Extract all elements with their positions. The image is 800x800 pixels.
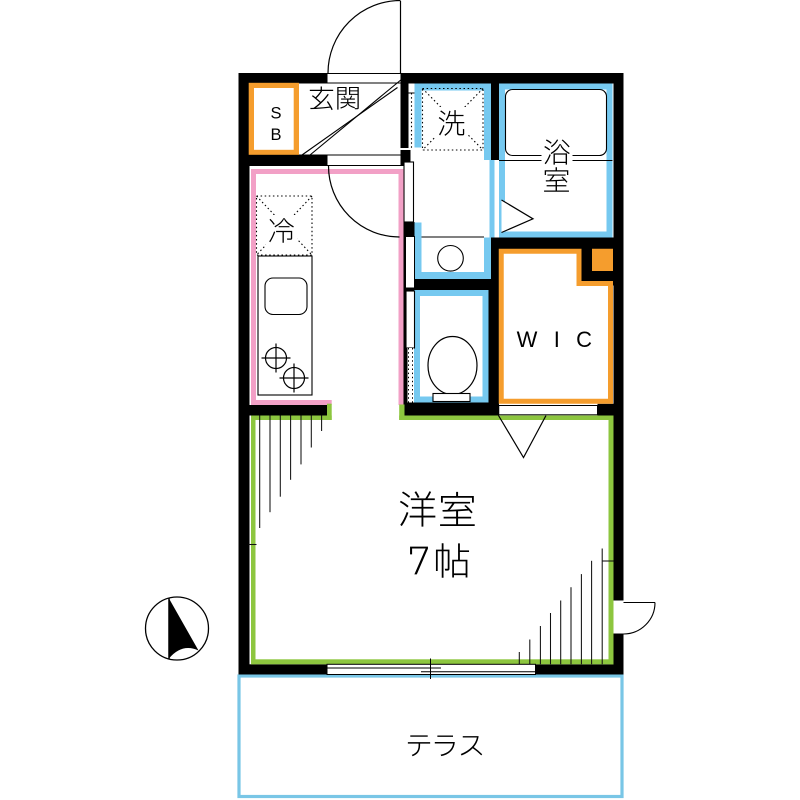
svg-text:WIC: WIC (517, 327, 609, 352)
svg-text:S: S (270, 105, 281, 123)
svg-text:B: B (270, 126, 281, 144)
